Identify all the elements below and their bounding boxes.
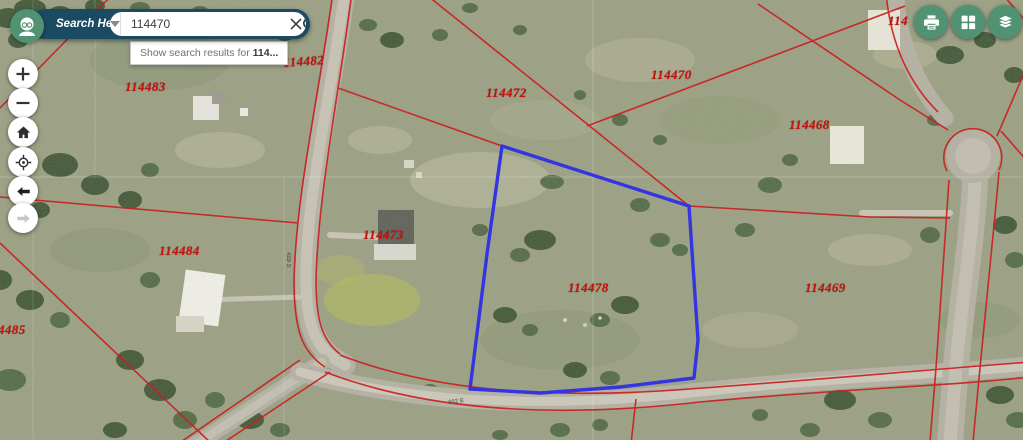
minus-icon	[15, 95, 31, 111]
arrow-right-icon	[15, 210, 32, 227]
suggestion-text: Show search results for	[140, 47, 253, 59]
my-location-button[interactable]	[8, 147, 38, 177]
search-bar: Search Here:	[30, 9, 310, 39]
app-logo[interactable]	[10, 9, 44, 43]
basemap-gallery-button[interactable]	[951, 5, 985, 39]
home-icon	[15, 124, 32, 141]
imagery-texture	[0, 0, 1023, 440]
crosshair-icon	[15, 154, 32, 171]
close-icon	[290, 18, 302, 30]
forward-extent-button[interactable]	[8, 203, 38, 233]
layers-button[interactable]	[988, 5, 1022, 39]
map-app-window: 1144821144831144721144701144681144841144…	[0, 0, 1023, 440]
search-icon	[302, 17, 306, 32]
plus-icon	[15, 66, 31, 82]
mascot-avatar-icon	[15, 14, 39, 38]
grid-apps-icon	[959, 13, 977, 31]
chevron-down-icon	[110, 21, 120, 27]
search-submit-button[interactable]	[302, 12, 306, 36]
zoom-in-button[interactable]	[8, 59, 38, 89]
printer-icon	[922, 13, 941, 32]
arrow-left-icon	[15, 183, 32, 200]
layers-icon	[996, 13, 1015, 32]
search-box	[110, 12, 306, 36]
search-suggestion-item[interactable]: Show search results for 114...	[130, 41, 288, 65]
home-button[interactable]	[8, 117, 38, 147]
back-extent-button[interactable]	[8, 176, 38, 206]
search-source-dropdown[interactable]	[110, 12, 121, 36]
suggestion-term: 114...	[253, 47, 279, 59]
search-input[interactable]	[121, 12, 290, 36]
print-button[interactable]	[914, 5, 948, 39]
map-canvas[interactable]	[0, 0, 1023, 440]
zoom-out-button[interactable]	[8, 88, 38, 118]
clear-search-button[interactable]	[290, 12, 302, 36]
